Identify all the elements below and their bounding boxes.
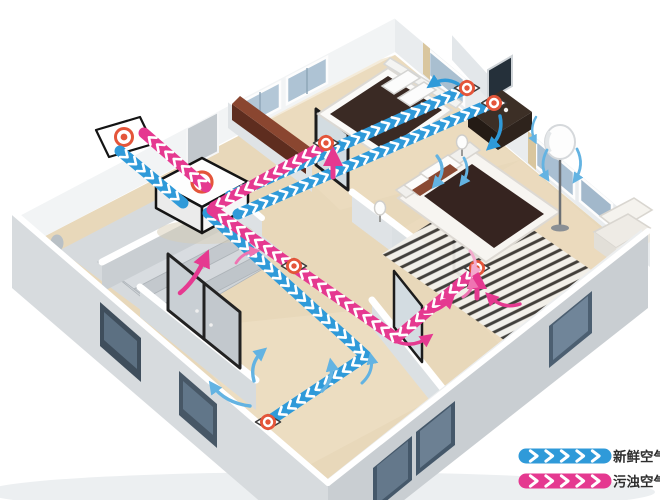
legend-item-fresh: 新鲜空气 — [526, 449, 660, 465]
legend-label: 污浊空气 — [613, 474, 660, 490]
legend-label: 新鲜空气 — [613, 449, 660, 465]
legend: 新鲜空气污浊空气 — [526, 449, 660, 490]
legend-item-exhaust: 污浊空气 — [526, 474, 660, 490]
floor-plan-canvas: 新鲜空气污浊空气 — [0, 0, 660, 500]
ventilation-diagram: 新鲜空气污浊空气 — [0, 0, 660, 500]
